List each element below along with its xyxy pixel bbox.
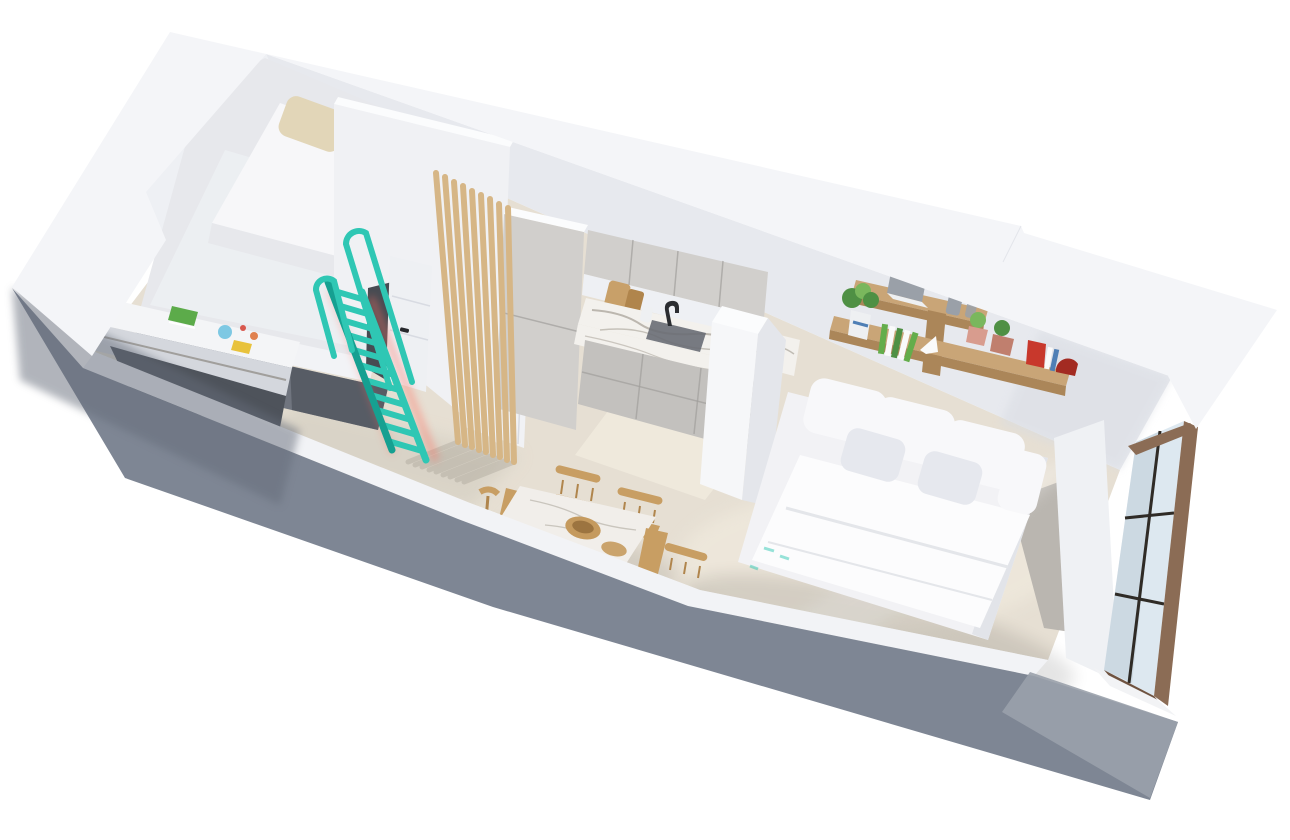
toy-ball <box>250 332 258 340</box>
toy-blue <box>218 325 232 339</box>
toy-red <box>240 325 246 331</box>
pink-pot-plant-1-foliage <box>970 312 986 328</box>
red-tablet-stand <box>1026 340 1046 368</box>
plant-foliage-3 <box>863 292 879 308</box>
pink-pot-plant-2-foliage <box>994 320 1010 336</box>
apartment-3d-floorplan <box>0 0 1290 840</box>
window-assembly <box>1054 420 1198 716</box>
floorplan-render <box>0 0 1290 840</box>
